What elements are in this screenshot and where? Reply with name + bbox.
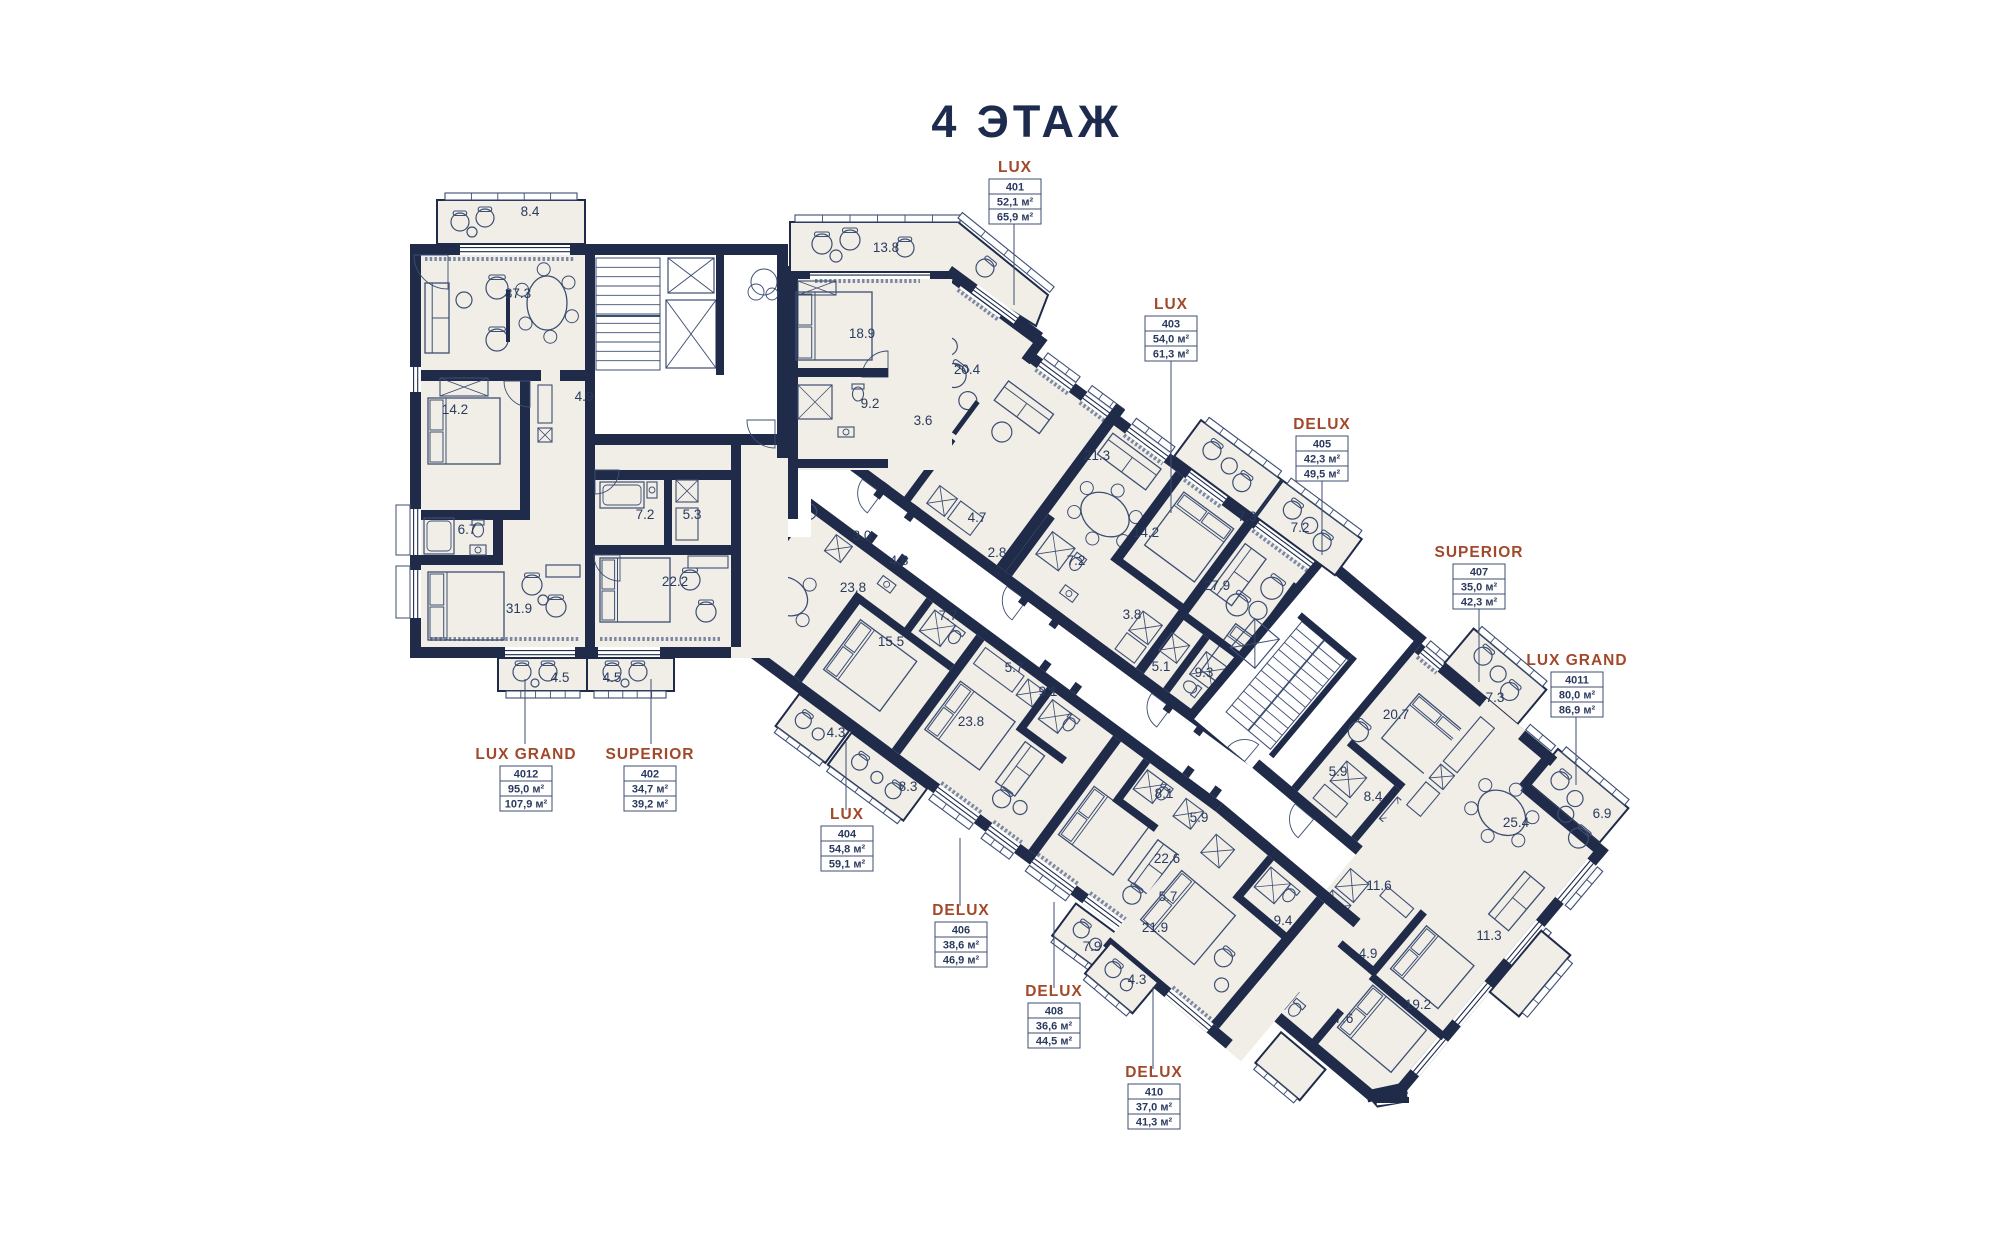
svg-text:42,3 м²: 42,3 м² xyxy=(1461,597,1498,609)
svg-text:27.9: 27.9 xyxy=(1204,578,1230,593)
svg-text:DELUX: DELUX xyxy=(1125,1064,1183,1081)
svg-text:DELUX: DELUX xyxy=(1293,416,1351,433)
svg-text:4011: 4011 xyxy=(1565,675,1589,687)
svg-text:37,0 м²: 37,0 м² xyxy=(1136,1102,1173,1114)
svg-text:5.7: 5.7 xyxy=(1159,889,1178,904)
svg-text:22.2: 22.2 xyxy=(662,574,688,589)
svg-text:4.3: 4.3 xyxy=(827,725,846,740)
svg-text:4.3: 4.3 xyxy=(1128,972,1147,987)
svg-text:403: 403 xyxy=(1162,319,1180,331)
svg-text:8.3: 8.3 xyxy=(899,779,918,794)
svg-text:5.9: 5.9 xyxy=(1190,810,1209,825)
svg-text:49,5 м²: 49,5 м² xyxy=(1304,469,1341,481)
svg-text:7.2: 7.2 xyxy=(636,507,655,522)
svg-text:404: 404 xyxy=(838,829,857,841)
svg-text:41,3 м²: 41,3 м² xyxy=(1136,1117,1173,1129)
svg-text:4.5: 4.5 xyxy=(603,670,622,685)
svg-text:35,0 м²: 35,0 м² xyxy=(1461,582,1498,594)
svg-text:36,6 м²: 36,6 м² xyxy=(1036,1021,1073,1033)
svg-text:44,5 м²: 44,5 м² xyxy=(1036,1036,1073,1048)
svg-text:401: 401 xyxy=(1006,182,1024,194)
svg-text:15.5: 15.5 xyxy=(878,634,904,649)
svg-text:9.3: 9.3 xyxy=(1195,665,1214,680)
svg-text:14.2: 14.2 xyxy=(1133,525,1159,540)
svg-text:9.4: 9.4 xyxy=(1274,913,1293,928)
svg-text:19.2: 19.2 xyxy=(1405,997,1431,1012)
svg-text:9.1: 9.1 xyxy=(1039,684,1058,699)
svg-text:4.9: 4.9 xyxy=(575,389,594,404)
svg-text:59,1 м²: 59,1 м² xyxy=(829,859,866,871)
svg-text:5.9: 5.9 xyxy=(1329,764,1348,779)
svg-text:LUX: LUX xyxy=(998,159,1032,176)
svg-text:61,3 м²: 61,3 м² xyxy=(1153,349,1190,361)
svg-text:21.9: 21.9 xyxy=(1142,920,1168,935)
svg-text:38,6 м²: 38,6 м² xyxy=(943,940,980,952)
svg-text:37.3: 37.3 xyxy=(505,286,531,301)
svg-text:4 ЭТАЖ: 4 ЭТАЖ xyxy=(931,96,1122,147)
svg-text:LUX GRAND: LUX GRAND xyxy=(1526,652,1627,669)
svg-text:52,1 м²: 52,1 м² xyxy=(997,197,1034,209)
svg-text:107,9 м²: 107,9 м² xyxy=(505,799,548,811)
svg-text:6.7: 6.7 xyxy=(458,522,477,537)
svg-text:4.9: 4.9 xyxy=(1359,946,1378,961)
svg-text:34,7 м²: 34,7 м² xyxy=(632,784,669,796)
svg-text:SUPERIOR: SUPERIOR xyxy=(1435,544,1524,561)
svg-text:65,9 м²: 65,9 м² xyxy=(997,212,1034,224)
svg-text:SUPERIOR: SUPERIOR xyxy=(606,746,695,763)
svg-text:22.6: 22.6 xyxy=(1154,851,1180,866)
svg-text:21.3: 21.3 xyxy=(1084,448,1110,463)
svg-text:LUX: LUX xyxy=(1154,296,1188,313)
svg-text:5.7: 5.7 xyxy=(1005,660,1024,675)
svg-text:5.1: 5.1 xyxy=(1152,659,1171,674)
svg-text:31.9: 31.9 xyxy=(506,601,532,616)
svg-text:46,9 м²: 46,9 м² xyxy=(943,955,980,967)
svg-text:11.3: 11.3 xyxy=(1476,928,1501,943)
svg-text:LUX: LUX xyxy=(830,806,864,823)
svg-text:4.5: 4.5 xyxy=(551,670,570,685)
svg-text:95,0 м²: 95,0 м² xyxy=(508,784,545,796)
svg-text:4.8: 4.8 xyxy=(890,553,909,568)
svg-text:39,2 м²: 39,2 м² xyxy=(632,799,669,811)
svg-text:18.9: 18.9 xyxy=(849,326,875,341)
svg-text:7.3: 7.3 xyxy=(1238,509,1257,524)
svg-text:4012: 4012 xyxy=(514,769,538,781)
svg-text:7.6: 7.6 xyxy=(1335,1011,1354,1026)
svg-text:408: 408 xyxy=(1045,1006,1063,1018)
svg-text:42,3 м²: 42,3 м² xyxy=(1304,454,1341,466)
svg-text:13.8: 13.8 xyxy=(873,240,899,255)
svg-text:2.8: 2.8 xyxy=(988,545,1007,560)
svg-text:23.8: 23.8 xyxy=(958,714,984,729)
svg-text:14.2: 14.2 xyxy=(442,402,468,417)
svg-text:9.2: 9.2 xyxy=(861,396,880,411)
svg-text:3.8: 3.8 xyxy=(1123,607,1142,622)
svg-text:406: 406 xyxy=(952,925,970,937)
svg-text:86,9 м²: 86,9 м² xyxy=(1559,705,1596,717)
svg-text:8.4: 8.4 xyxy=(1364,789,1383,804)
svg-text:405: 405 xyxy=(1313,439,1331,451)
svg-text:20.4: 20.4 xyxy=(954,362,981,377)
svg-text:23.8: 23.8 xyxy=(840,580,866,595)
svg-text:7.7: 7.7 xyxy=(939,608,958,623)
svg-text:8.1: 8.1 xyxy=(1155,786,1174,801)
svg-text:4.7: 4.7 xyxy=(968,510,987,525)
svg-text:54,0 м²: 54,0 м² xyxy=(1153,334,1190,346)
svg-text:80,0 м²: 80,0 м² xyxy=(1559,690,1596,702)
svg-text:3.6: 3.6 xyxy=(914,413,933,428)
svg-text:3.0: 3.0 xyxy=(853,528,872,543)
svg-text:407: 407 xyxy=(1470,567,1488,579)
svg-text:54,8 м²: 54,8 м² xyxy=(829,844,866,856)
svg-text:11.6: 11.6 xyxy=(1366,878,1391,893)
svg-text:7.2: 7.2 xyxy=(1291,520,1310,535)
svg-text:7.3: 7.3 xyxy=(1486,690,1505,705)
svg-text:402: 402 xyxy=(641,769,659,781)
svg-text:20.7: 20.7 xyxy=(1383,707,1409,722)
svg-text:DELUX: DELUX xyxy=(932,902,990,919)
svg-text:LUX GRAND: LUX GRAND xyxy=(475,746,576,763)
svg-text:7.9: 7.9 xyxy=(1083,939,1102,954)
svg-text:7.2: 7.2 xyxy=(1067,553,1086,568)
svg-text:6.9: 6.9 xyxy=(1593,806,1612,821)
svg-text:410: 410 xyxy=(1145,1087,1163,1099)
svg-text:8.4: 8.4 xyxy=(521,204,540,219)
svg-text:5.3: 5.3 xyxy=(683,507,702,522)
svg-text:25.4: 25.4 xyxy=(1503,815,1530,830)
